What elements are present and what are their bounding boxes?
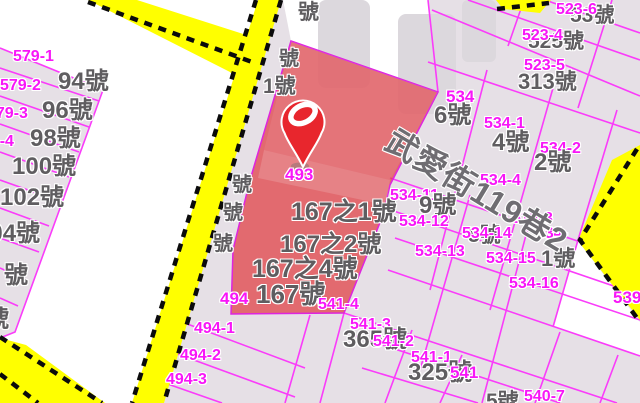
map-viewport[interactable]: 579-1579-2579-3579-4579-594號96號98號100號10…: [0, 0, 640, 403]
pin-shadow: [291, 163, 309, 170]
map-canvas[interactable]: [0, 0, 640, 403]
